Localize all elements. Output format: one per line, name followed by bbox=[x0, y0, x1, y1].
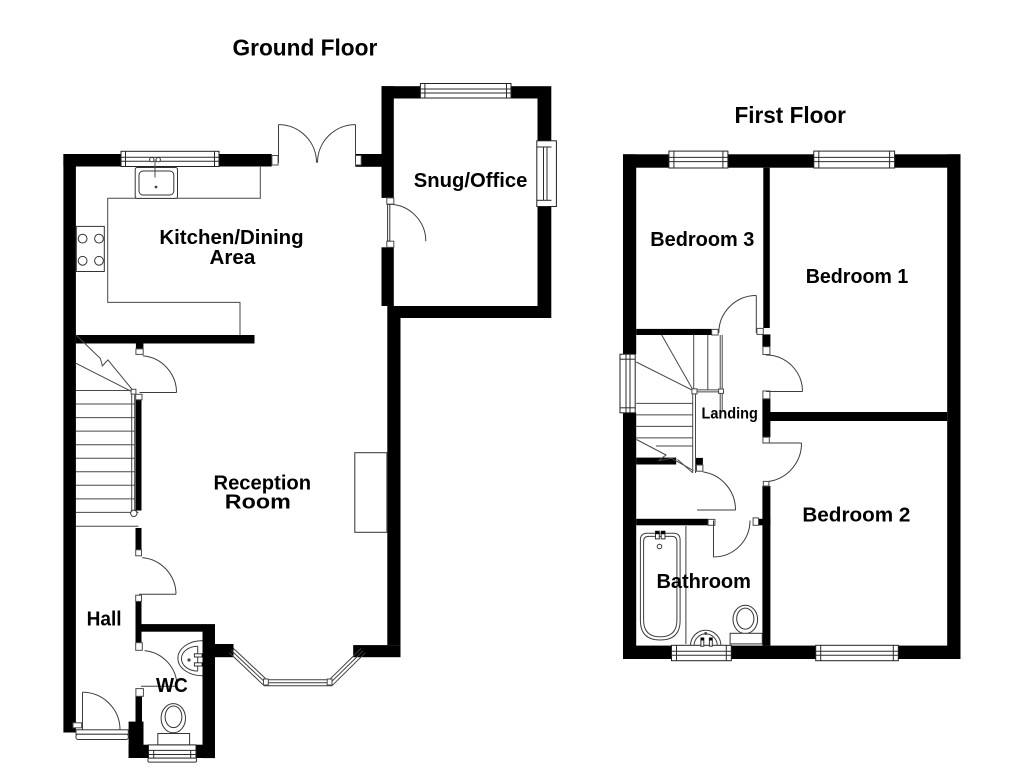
svg-text:Area: Area bbox=[210, 246, 256, 269]
svg-text:Ground Floor: Ground Floor bbox=[233, 34, 378, 60]
svg-text:WC: WC bbox=[156, 674, 188, 697]
svg-text:Snug/Office: Snug/Office bbox=[414, 169, 528, 192]
svg-text:Landing: Landing bbox=[702, 406, 758, 423]
svg-text:Bedroom 1: Bedroom 1 bbox=[806, 265, 909, 288]
svg-text:Room: Room bbox=[225, 491, 291, 514]
svg-text:Hall: Hall bbox=[87, 608, 122, 631]
svg-text:First Floor: First Floor bbox=[734, 102, 846, 128]
svg-text:Bedroom 2: Bedroom 2 bbox=[802, 504, 910, 527]
svg-text:Bathroom: Bathroom bbox=[656, 570, 751, 593]
svg-text:Bedroom 3: Bedroom 3 bbox=[650, 228, 754, 251]
